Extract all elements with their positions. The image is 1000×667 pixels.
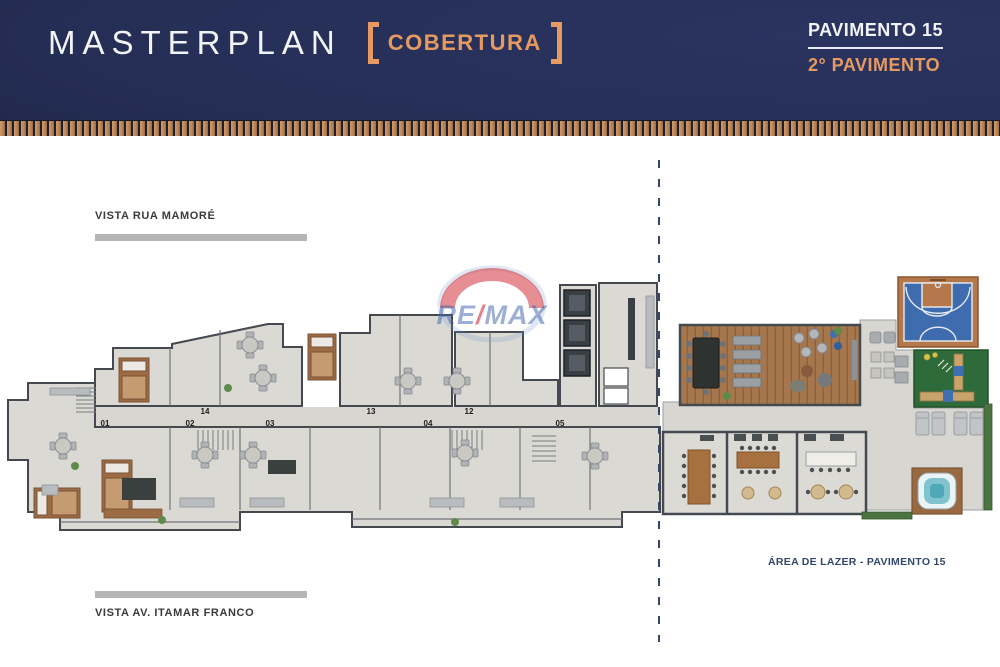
section-divider-dashed-line <box>658 160 660 642</box>
top-street-label: VISTA RUA MAMORÉ <box>95 210 215 222</box>
outdoor-gym-turf <box>914 350 988 407</box>
bottom-street-indicator-bar <box>95 591 307 598</box>
unit-number: 02 <box>186 419 195 428</box>
unit-number: 01 <box>101 419 110 428</box>
leisure-area-label: ÁREA DE LAZER - PAVIMENTO 15 <box>768 556 946 568</box>
masterplan-poster: MASTERPLAN COBERTURA PAVIMENTO 15 2° PAV… <box>0 0 1000 667</box>
court-key <box>922 283 952 307</box>
unit-12-block <box>455 332 558 406</box>
basketball-court <box>898 277 978 347</box>
remax-balloon-icon: RE/MAX <box>432 262 552 342</box>
unit-number: 14 <box>201 407 210 416</box>
unit-number: 13 <box>367 407 376 416</box>
long-table-1 <box>688 450 710 504</box>
unit-number: 04 <box>424 419 433 428</box>
svg-text:RE/MAX: RE/MAX <box>436 300 548 330</box>
long-table-2 <box>737 452 779 468</box>
bottom-street-label: VISTA AV. ITAMAR FRANCO <box>95 607 254 619</box>
long-table-3 <box>806 452 856 466</box>
unit-number: 03 <box>266 419 275 428</box>
remax-watermark: RE/MAX <box>432 262 552 342</box>
unit-number: 12 <box>465 407 474 416</box>
unit-number: 05 <box>556 419 565 428</box>
top-street-indicator-bar <box>95 234 307 241</box>
party-rooms <box>663 432 866 514</box>
central-corridor <box>95 407 660 427</box>
meeting-table <box>693 338 719 388</box>
jacuzzi <box>912 468 962 514</box>
wood-lounge-room <box>680 325 860 405</box>
